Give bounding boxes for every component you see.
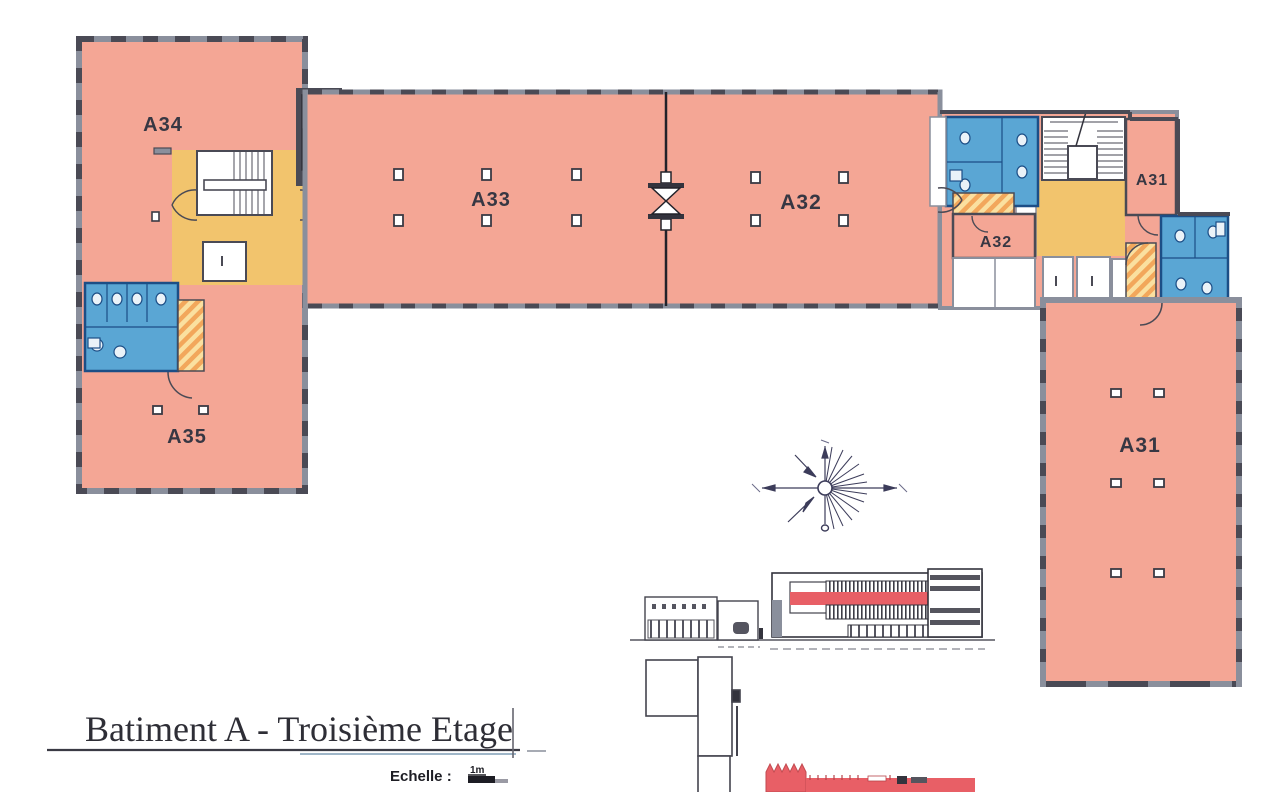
building-elevation-icon xyxy=(630,569,995,649)
room-label-a33: A33 xyxy=(471,189,511,211)
ramp-hatch-junction xyxy=(953,193,1014,214)
room-a32-annex: A32 xyxy=(953,214,1035,258)
floor-plan-canvas: A34 A35 A33 A32 xyxy=(0,0,1280,792)
column xyxy=(152,212,159,221)
stairwell-right xyxy=(1042,112,1125,180)
closet-left xyxy=(203,242,246,281)
scale-label: Echelle : xyxy=(390,768,452,785)
stair-hall-right xyxy=(1033,180,1125,256)
closet-junction-left xyxy=(953,258,1035,308)
title-block: Batiment A - Troisième Etage Echelle : 1… xyxy=(47,708,546,785)
room-label-a31: A31 xyxy=(1119,434,1161,457)
room-label-a35: A35 xyxy=(167,426,207,448)
room-label-a32: A32 xyxy=(780,191,822,214)
scale-bar-icon: 1m xyxy=(468,765,508,783)
room-label-a32-annex: A32 xyxy=(980,234,1012,251)
key-plan-icon xyxy=(646,657,740,792)
furniture-mark xyxy=(154,148,171,154)
page-title: Batiment A - Troisième Etage xyxy=(85,709,513,749)
floor-plan-page: A34 A35 A33 A32 xyxy=(0,0,1280,792)
stair-hall-left xyxy=(172,150,305,285)
ramp-hatch-left xyxy=(178,300,204,371)
room-label-a34: A34 xyxy=(143,114,183,136)
room-label-a31-annex: A31 xyxy=(1136,172,1168,189)
sanitary-left xyxy=(85,283,178,371)
red-elevation-icon xyxy=(766,764,975,792)
compass-rose-icon xyxy=(752,440,907,531)
central-wing: A33 A32 xyxy=(305,92,940,306)
right-wing: A31 xyxy=(1043,300,1239,684)
sanitary-junction-right xyxy=(1161,216,1228,303)
stair-handrail xyxy=(204,180,266,190)
